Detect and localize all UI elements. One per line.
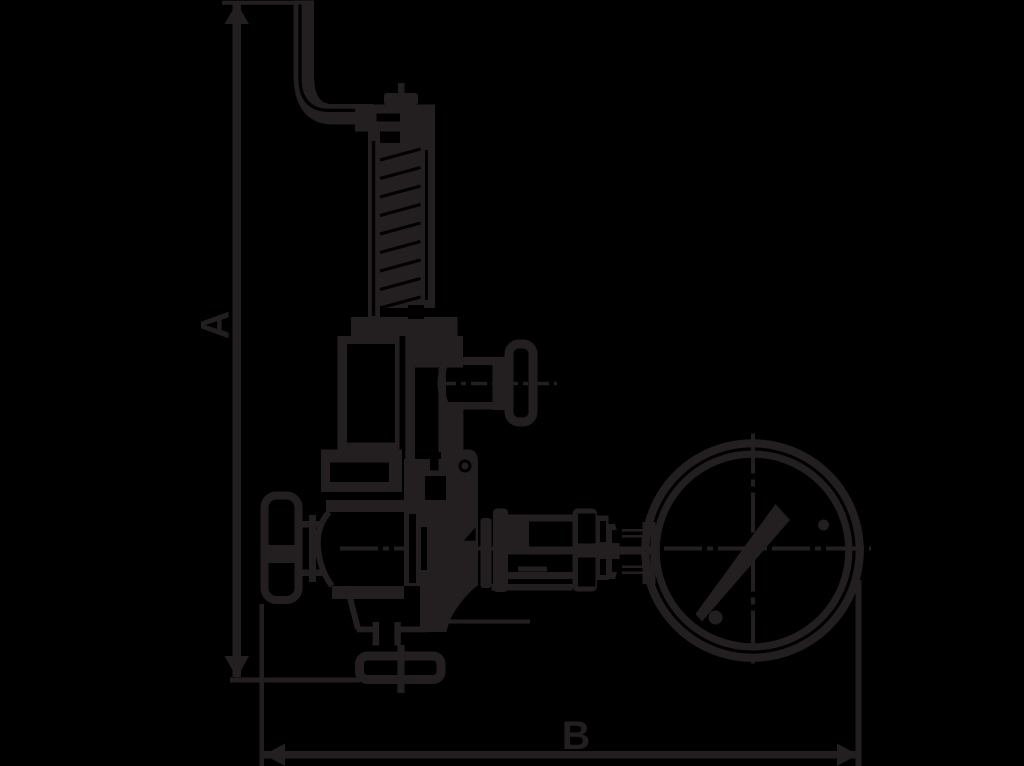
svg-text:B: B [562, 714, 591, 758]
svg-text:A: A [194, 311, 238, 340]
